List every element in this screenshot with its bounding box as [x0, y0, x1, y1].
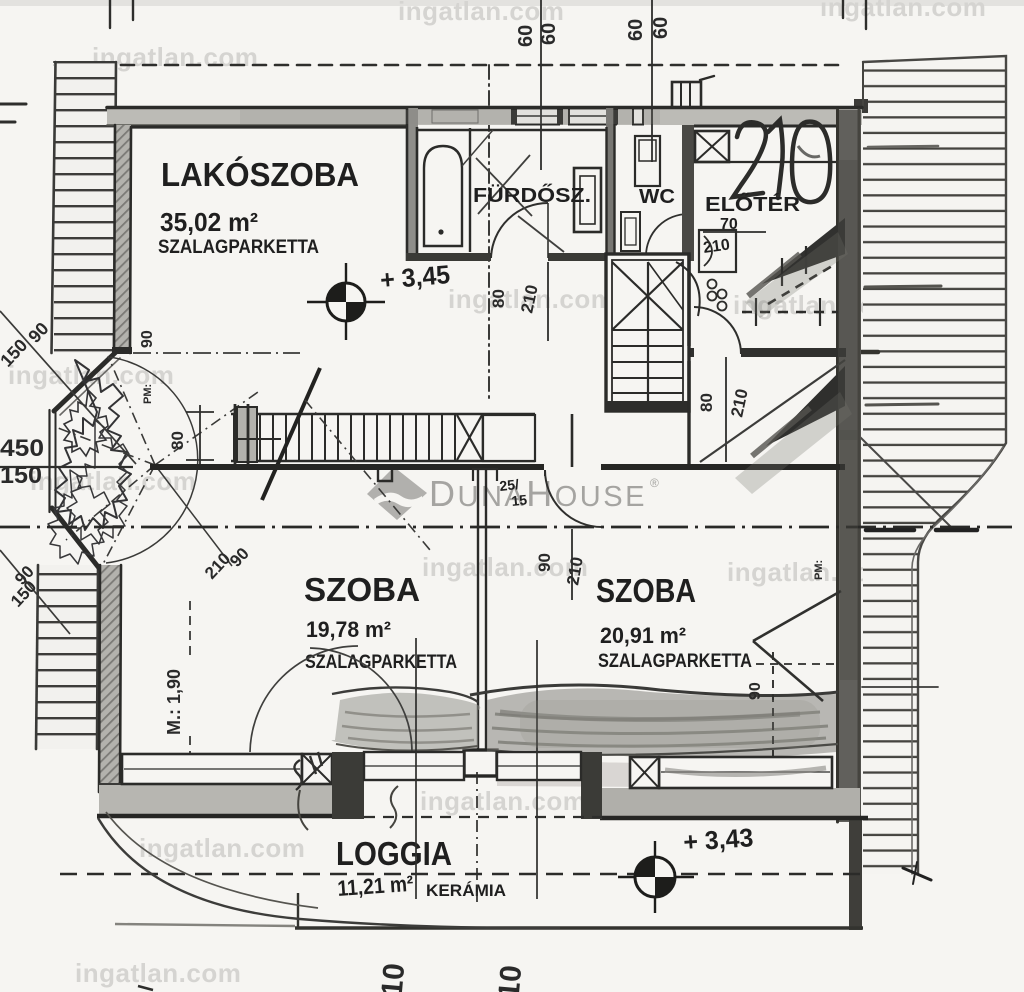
- svg-text:90: 90: [139, 330, 156, 348]
- svg-text:KERÁMIA: KERÁMIA: [426, 881, 506, 900]
- svg-text:60: 60: [515, 25, 537, 47]
- svg-text:SZALAGPARKETTA: SZALAGPARKETTA: [158, 237, 319, 258]
- svg-text:ingatlan.com: ingatlan.com: [75, 958, 241, 988]
- svg-text:60: 60: [625, 19, 647, 41]
- svg-text:60: 60: [538, 23, 560, 45]
- svg-text:450: 450: [0, 435, 44, 462]
- svg-text:®: ®: [650, 476, 659, 490]
- svg-text:+ 3,43: + 3,43: [682, 822, 754, 857]
- svg-text:SZALAGPARKETTA: SZALAGPARKETTA: [305, 652, 457, 673]
- svg-text:11,21 m²: 11,21 m²: [337, 871, 415, 901]
- svg-text:210: 210: [491, 964, 528, 992]
- svg-text:SZOBA: SZOBA: [304, 571, 420, 608]
- svg-text:20,91 m²: 20,91 m²: [600, 623, 686, 648]
- svg-text:210: 210: [374, 962, 411, 992]
- svg-text:80: 80: [697, 393, 716, 412]
- svg-text:15: 15: [511, 491, 528, 509]
- svg-text:80: 80: [168, 431, 187, 450]
- svg-text:90: 90: [747, 682, 764, 700]
- svg-text:PM:: PM:: [813, 560, 825, 580]
- svg-text:M.: 1,90: M.: 1,90: [164, 669, 184, 735]
- svg-text:35,02 m²: 35,02 m²: [160, 207, 258, 237]
- svg-text:90: 90: [535, 553, 554, 572]
- svg-text:+ 3,45: + 3,45: [379, 259, 451, 295]
- svg-text:WC: WC: [639, 186, 675, 208]
- svg-text:LAKÓSZOBA: LAKÓSZOBA: [161, 156, 359, 193]
- svg-text:ingatlan.com: ingatlan.com: [820, 0, 986, 22]
- svg-text:ingatlan.com: ingatlan.com: [398, 0, 564, 26]
- svg-text:60: 60: [650, 17, 672, 39]
- svg-text:25/: 25/: [499, 476, 520, 494]
- svg-text:ingatlan.com: ingatlan.com: [420, 786, 586, 816]
- svg-text:SZOBA: SZOBA: [596, 572, 696, 609]
- svg-text:19,78 m²: 19,78 m²: [306, 617, 391, 642]
- svg-text:80: 80: [489, 289, 508, 308]
- svg-text:FÜRDŐSZ.: FÜRDŐSZ.: [473, 184, 591, 207]
- svg-text:ELŐTÉR: ELŐTÉR: [705, 193, 801, 216]
- svg-text:SZALAGPARKETTA: SZALAGPARKETTA: [598, 651, 752, 672]
- svg-text:ingatlan.com: ingatlan.com: [139, 833, 305, 863]
- svg-text:PM:: PM:: [142, 384, 154, 404]
- svg-text:LOGGIA: LOGGIA: [336, 835, 452, 872]
